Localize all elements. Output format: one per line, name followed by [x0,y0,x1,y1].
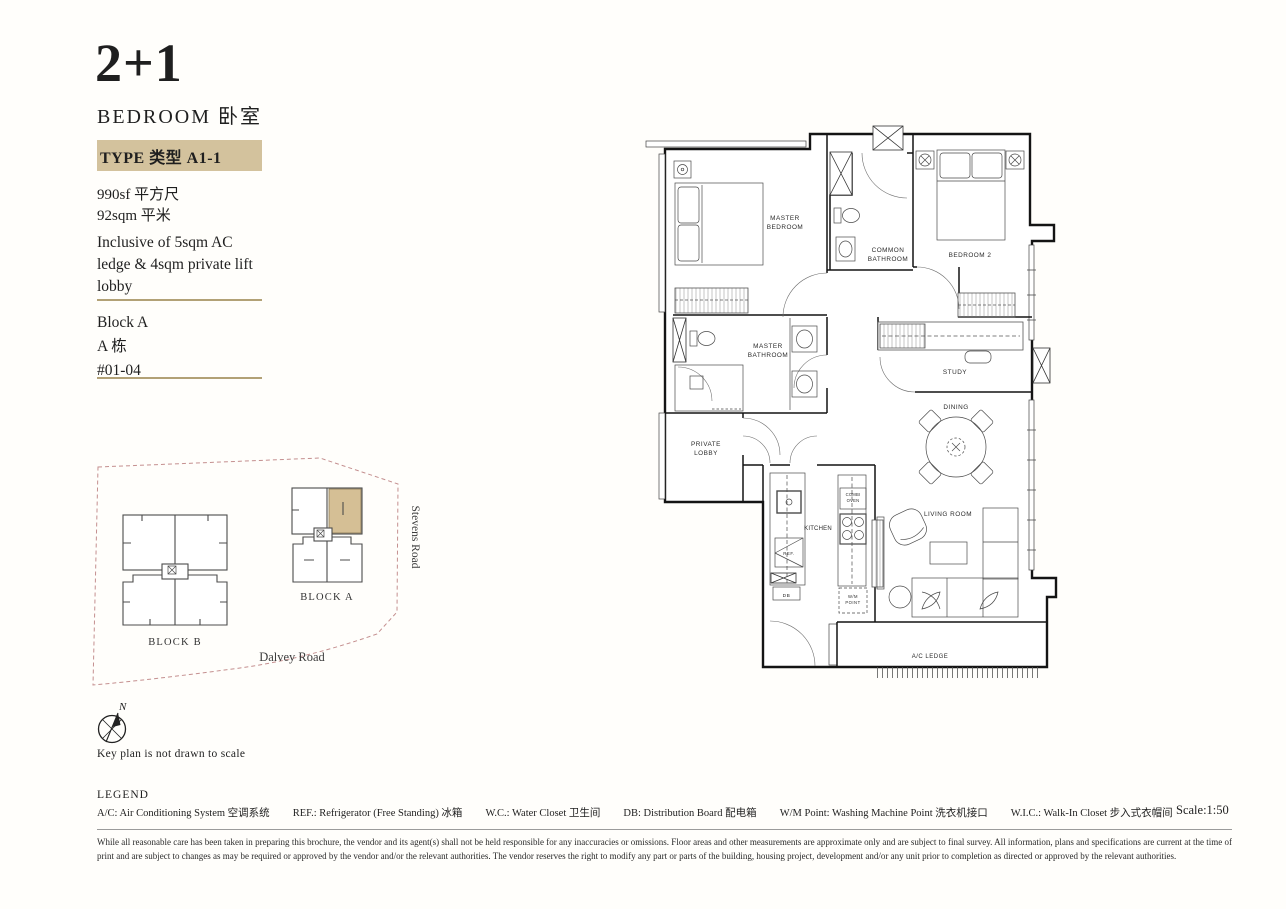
compass-n-label: N [118,701,127,713]
scale-label: Scale:1:50 [1176,803,1229,818]
area-imperial: 990sf 平方尺 [97,183,179,204]
label-bedroom-2: BEDROOM 2 [949,252,992,259]
legend-item-ac: A/C: Air Conditioning System 空调系统 [97,805,270,820]
label-common-bathroom: BATHROOM [868,256,908,263]
unit-highlight [329,489,361,533]
block-a-label: BLOCK A [300,592,354,603]
block-a-buildings [292,488,362,582]
label-combi-oven: OVEN [847,498,860,503]
label-wm-point: W/M [848,594,858,599]
unit-block-cn: A 栋 [97,335,148,359]
label-common-bathroom: COMMON [872,247,905,254]
label-living-room: LIVING ROOM [924,511,972,518]
ac-ledge-hatch [874,667,1038,678]
unit-number: #01-04 [97,359,148,383]
page-subtitle: BEDROOM 卧室 [97,100,262,129]
label-db: DB [783,593,791,599]
divider-rule [97,829,1232,830]
legend-item-wc: W.C.: Water Closet 卫生间 [485,805,600,820]
label-combi-oven: COMBI [846,492,861,497]
page-title: 2+1 [95,36,183,90]
area-note: Inclusive of 5sqm AC ledge & 4sqm privat… [97,232,267,298]
type-banner-label: TYPE 类型 A1-1 [97,144,222,168]
stevens-road-label: Stevens Road [409,506,421,569]
label-private-lobby: PRIVATE [691,441,721,448]
legend-row: A/C: Air Conditioning System 空调系统 REF.: … [97,805,1167,820]
legend-title: LEGEND [97,789,149,801]
label-dining: DINING [943,404,968,411]
label-ref: REF. [783,551,795,556]
unit-info: Block A A 栋 #01-04 [97,311,148,383]
legend-item-wic: W.I.C.: Walk-In Closet 步入式衣帽间 [1011,805,1173,820]
exterior-walls [665,134,1056,667]
type-banner: TYPE 类型 A1-1 [97,140,262,171]
label-master-bathroom: MASTER [753,343,783,350]
label-kitchen: KITCHEN [804,526,832,532]
dalvey-road-label: Dalvey Road [259,650,325,664]
key-plan: BLOCK A BLOCK B Stevens Road Dalvey Road [90,452,430,702]
area-metric: 92sqm 平米 [97,204,171,225]
label-study: STUDY [943,369,967,376]
unit-block: Block A [97,311,148,335]
legend-item-db: DB: Distribution Board 配电箱 [623,805,756,820]
legend-item-wm: W/M Point: Washing Machine Point 洗衣机接口 [780,805,988,820]
disclaimer-text: While all reasonable care has been taken… [97,836,1232,864]
brochure-page: 2+1 BEDROOM 卧室 TYPE 类型 A1-1 990sf 平方尺 92… [0,0,1286,909]
label-wm-point: POINT [845,600,860,605]
label-master-bedroom: BEDROOM [767,224,804,231]
floor-plan: MASTER BEDROOM COMMON BATHROOM BEDROOM 2… [630,110,1150,700]
label-ac-ledge: A/C LEDGE [912,654,949,660]
block-b-label: BLOCK B [148,637,202,648]
divider-rule [97,299,262,301]
label-private-lobby: LOBBY [694,450,718,457]
divider-rule [97,377,262,379]
legend-item-ref: REF.: Refrigerator (Free Standing) 冰箱 [293,805,463,820]
keyplan-note: Key plan is not drawn to scale [97,748,245,760]
label-master-bathroom: BATHROOM [748,352,788,359]
label-master-bedroom: MASTER [770,215,800,222]
block-b-buildings [123,515,227,625]
